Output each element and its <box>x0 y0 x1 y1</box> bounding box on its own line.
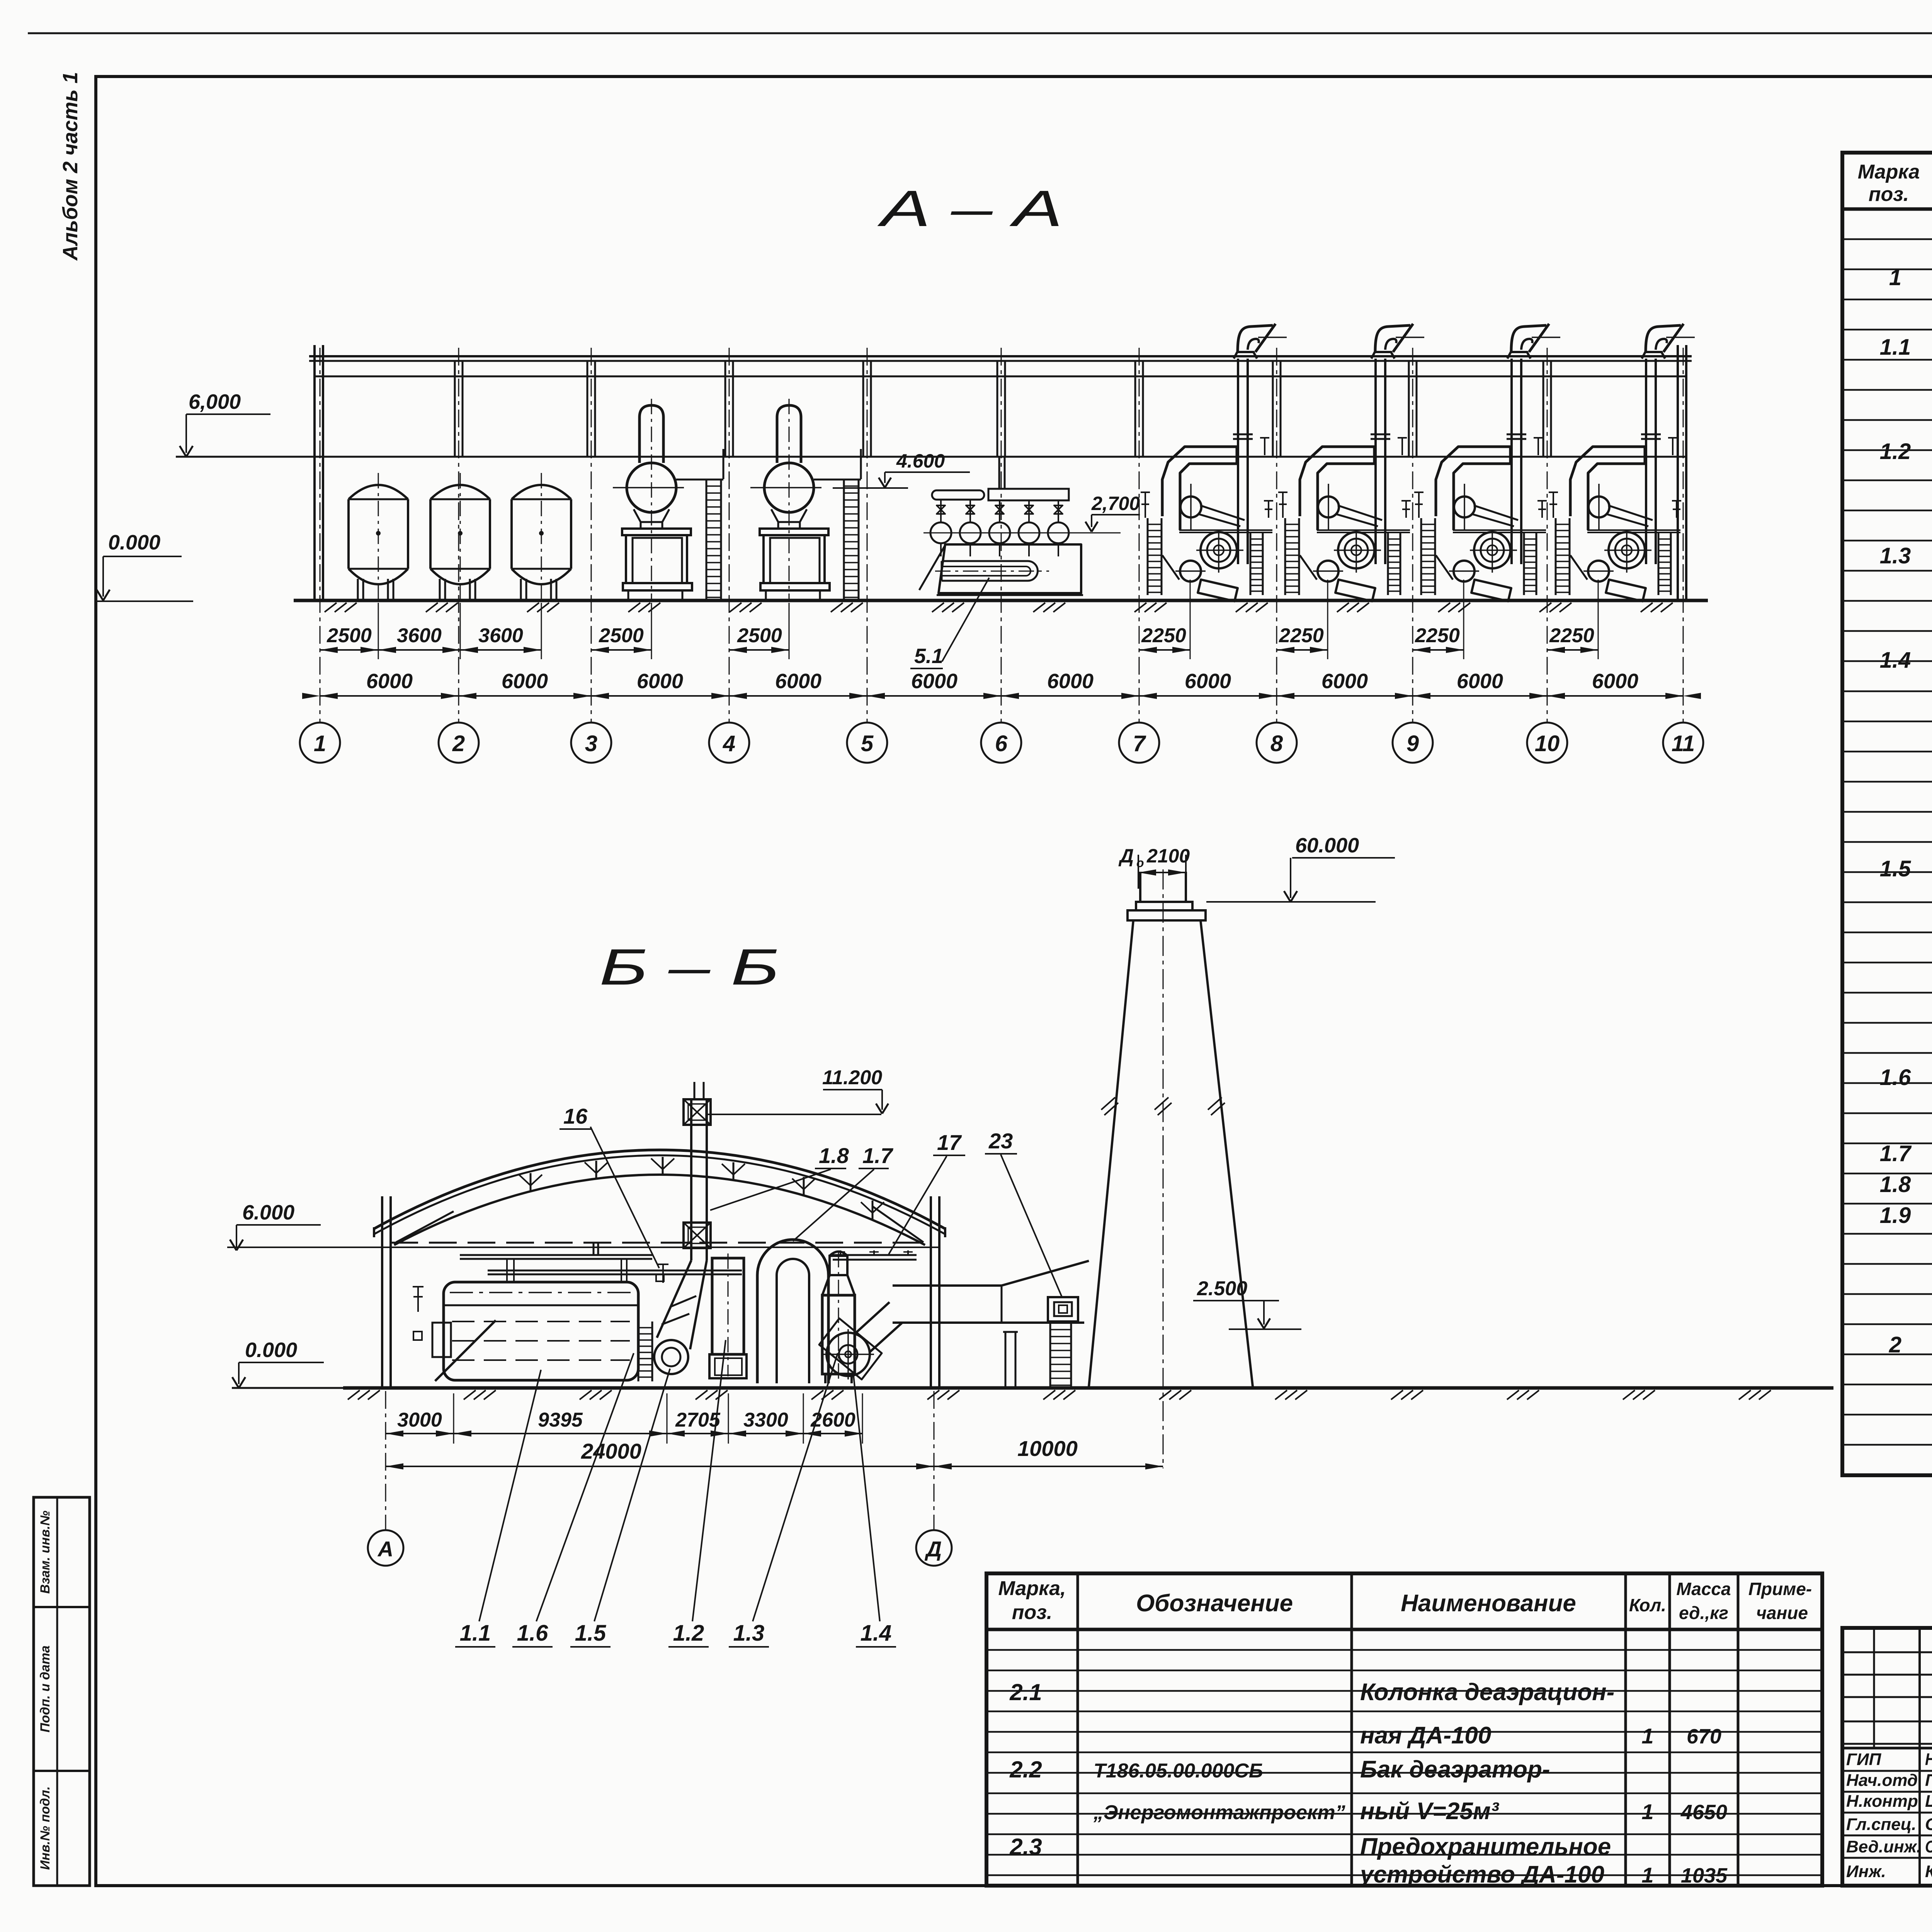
svg-text:6000: 6000 <box>1592 670 1638 693</box>
svg-text:Приме-: Приме- <box>1748 1579 1812 1599</box>
svg-text:1.1: 1.1 <box>460 1621 491 1646</box>
svg-text:Вед.инж.: Вед.инж. <box>1846 1837 1921 1856</box>
svg-text:Н.контр: Н.контр <box>1846 1792 1918 1811</box>
svg-text:чание: чание <box>1756 1603 1808 1623</box>
svg-text:Б – Б: Б – Б <box>599 939 779 995</box>
svg-text:поз.: поз. <box>1012 1601 1053 1624</box>
svg-text:2: 2 <box>1889 1332 1901 1357</box>
svg-text:6,000: 6,000 <box>189 390 241 413</box>
svg-text:4650: 4650 <box>1680 1801 1727 1824</box>
svg-text:2250: 2250 <box>1279 624 1324 647</box>
svg-text:1: 1 <box>314 731 326 756</box>
svg-text:1.3: 1.3 <box>1880 543 1911 568</box>
svg-text:Нидбальский: Нидбальский <box>1925 1750 1932 1769</box>
svg-text:1.1: 1.1 <box>1880 335 1911 360</box>
svg-text:1.7: 1.7 <box>1880 1141 1912 1166</box>
svg-text:3600: 3600 <box>478 624 523 647</box>
svg-text:Д: Д <box>925 1537 942 1561</box>
svg-text:6000: 6000 <box>911 670 957 693</box>
svg-text:1: 1 <box>1889 265 1901 290</box>
svg-text:ная ДА-100: ная ДА-100 <box>1360 1722 1491 1749</box>
svg-text:3600: 3600 <box>397 624 442 647</box>
svg-text:А – А: А – А <box>877 180 1063 237</box>
svg-text:2500: 2500 <box>327 624 372 647</box>
svg-text:„Энергомонтажпроект”: „Энергомонтажпроект” <box>1093 1801 1345 1824</box>
svg-text:16: 16 <box>563 1104 588 1128</box>
svg-text:0.000: 0.000 <box>108 531 160 554</box>
svg-text:поз.: поз. <box>1869 183 1909 206</box>
svg-text:1.8: 1.8 <box>819 1143 849 1168</box>
svg-text:6: 6 <box>995 731 1008 756</box>
svg-text:устройство ДА-100: устройство ДА-100 <box>1359 1861 1604 1888</box>
svg-text:4: 4 <box>723 731 735 756</box>
svg-text:Альбом 2 часть 1: Альбом 2 часть 1 <box>59 72 82 261</box>
svg-text:6000: 6000 <box>366 670 413 693</box>
svg-text:Наименование: Наименование <box>1401 1590 1576 1617</box>
svg-text:1.7: 1.7 <box>862 1143 894 1168</box>
svg-text:1: 1 <box>1641 1863 1653 1887</box>
svg-text:1.6: 1.6 <box>1880 1065 1911 1090</box>
svg-text:6000: 6000 <box>775 670 821 693</box>
svg-text:8: 8 <box>1270 731 1283 756</box>
svg-text:А: А <box>377 1537 393 1561</box>
svg-text:ГИП: ГИП <box>1846 1750 1882 1769</box>
svg-text:2,700: 2,700 <box>1091 493 1140 514</box>
svg-text:2600: 2600 <box>810 1409 855 1431</box>
svg-text:1.4: 1.4 <box>1880 648 1911 673</box>
svg-text:1.5: 1.5 <box>1880 856 1911 881</box>
svg-text:6.000: 6.000 <box>242 1201 294 1224</box>
svg-text:2500: 2500 <box>599 624 644 647</box>
svg-text:4.600: 4.600 <box>896 450 945 472</box>
svg-text:1.6: 1.6 <box>517 1621 548 1646</box>
svg-text:Взам. инв.№: Взам. инв.№ <box>38 1510 53 1594</box>
svg-text:5: 5 <box>861 731 874 756</box>
svg-text:Сурмонин: Сурмонин <box>1925 1815 1932 1834</box>
svg-text:2100: 2100 <box>1146 845 1190 867</box>
svg-text:Предохранительное: Предохранительное <box>1360 1833 1611 1860</box>
svg-text:Спранцманис: Спранцманис <box>1925 1837 1932 1856</box>
svg-text:1: 1 <box>1641 1799 1653 1824</box>
svg-text:ный V=25м³: ный V=25м³ <box>1360 1798 1499 1825</box>
svg-text:2.2: 2.2 <box>1009 1757 1042 1782</box>
svg-text:2.1: 2.1 <box>1009 1679 1042 1705</box>
svg-text:1: 1 <box>1641 1724 1653 1748</box>
svg-text:10: 10 <box>1535 731 1560 756</box>
svg-text:Т186.05.00.000СБ: Т186.05.00.000СБ <box>1094 1760 1263 1782</box>
svg-text:10000: 10000 <box>1017 1436 1078 1461</box>
svg-text:2500: 2500 <box>737 624 782 647</box>
svg-text:3000: 3000 <box>397 1409 442 1431</box>
svg-text:о: о <box>1136 856 1144 870</box>
svg-text:9: 9 <box>1406 731 1419 756</box>
svg-text:5.1: 5.1 <box>914 645 943 668</box>
svg-text:Нач.отд: Нач.отд <box>1846 1771 1918 1790</box>
svg-text:Марка: Марка <box>1858 161 1920 183</box>
svg-text:1035: 1035 <box>1681 1864 1728 1887</box>
svg-text:11: 11 <box>1672 731 1695 756</box>
svg-text:23: 23 <box>988 1129 1013 1153</box>
svg-text:Марка,: Марка, <box>998 1577 1066 1600</box>
svg-text:6000: 6000 <box>502 670 548 693</box>
svg-text:Инж.: Инж. <box>1846 1862 1886 1881</box>
svg-text:670: 670 <box>1687 1725 1721 1748</box>
svg-text:Д: Д <box>1118 845 1134 867</box>
svg-text:3300: 3300 <box>743 1409 788 1431</box>
svg-text:Кол.: Кол. <box>1629 1595 1666 1615</box>
svg-text:Обозначение: Обозначение <box>1136 1590 1293 1617</box>
svg-text:24000: 24000 <box>581 1439 641 1463</box>
svg-text:Колонка деаэрацион-: Колонка деаэрацион- <box>1360 1679 1614 1706</box>
svg-text:Инв.№ подл.: Инв.№ подл. <box>38 1786 53 1870</box>
svg-text:0.000: 0.000 <box>245 1338 297 1362</box>
svg-text:3: 3 <box>585 731 597 756</box>
svg-text:ед.,кг: ед.,кг <box>1679 1603 1728 1623</box>
svg-text:Попов: Попов <box>1925 1771 1932 1790</box>
svg-text:2705: 2705 <box>675 1409 721 1431</box>
svg-text:Масса: Масса <box>1676 1579 1731 1599</box>
svg-text:1.4: 1.4 <box>861 1621 892 1646</box>
svg-text:60.000: 60.000 <box>1295 834 1359 857</box>
svg-text:1.5: 1.5 <box>575 1621 606 1646</box>
svg-text:1.2: 1.2 <box>1880 439 1911 464</box>
svg-text:2250: 2250 <box>1549 624 1594 647</box>
svg-text:6000: 6000 <box>1047 670 1094 693</box>
svg-text:Костромин: Костромин <box>1925 1862 1932 1881</box>
svg-text:Бак деаэратор-: Бак деаэратор- <box>1360 1756 1550 1783</box>
svg-text:9395: 9395 <box>538 1409 583 1431</box>
svg-text:2.3: 2.3 <box>1009 1834 1042 1860</box>
svg-text:1.3: 1.3 <box>733 1621 765 1646</box>
svg-text:7: 7 <box>1133 731 1146 756</box>
svg-text:1.9: 1.9 <box>1880 1203 1911 1228</box>
svg-text:6000: 6000 <box>637 670 683 693</box>
svg-text:2250: 2250 <box>1141 624 1186 647</box>
svg-text:1.2: 1.2 <box>673 1621 704 1646</box>
svg-text:2250: 2250 <box>1415 624 1460 647</box>
svg-text:6000: 6000 <box>1185 670 1231 693</box>
svg-text:17: 17 <box>937 1130 962 1155</box>
svg-text:Шнитко: Шнитко <box>1925 1792 1932 1811</box>
svg-text:1.8: 1.8 <box>1880 1172 1911 1197</box>
svg-text:2: 2 <box>452 731 465 756</box>
svg-text:6000: 6000 <box>1321 670 1368 693</box>
svg-text:Гл.спец.: Гл.спец. <box>1846 1815 1916 1834</box>
svg-text:6000: 6000 <box>1457 670 1503 693</box>
svg-text:11.200: 11.200 <box>822 1066 882 1089</box>
svg-text:Подп. и дата: Подп. и дата <box>38 1645 53 1732</box>
